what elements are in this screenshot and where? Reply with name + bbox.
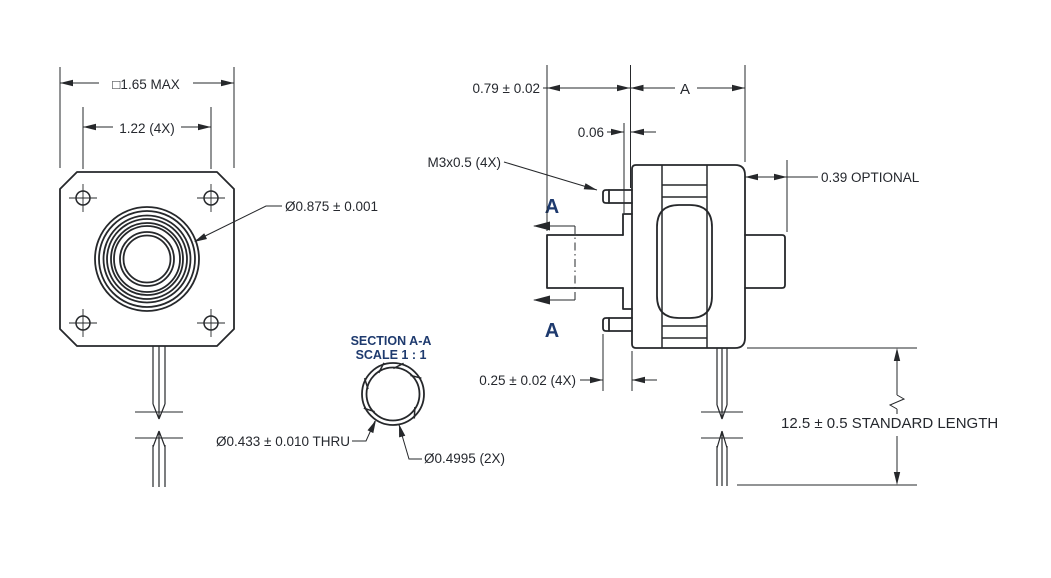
- section-arrow-bottom-label: A: [545, 320, 559, 342]
- mounting-hole-bottom-left: [69, 309, 97, 337]
- extension-lines: [547, 65, 787, 391]
- dim-pilot-depth-label: 0.06: [578, 125, 604, 140]
- dim-flange-depth-label: 0.25 ± 0.02 (4X): [479, 373, 576, 388]
- section-view: SECTION A-A SCALE 1 : 1 Ø0.433 ± 0.010 T…: [216, 334, 505, 466]
- endbell-joints: [662, 165, 707, 348]
- dim-hole-spacing-label: 1.22 (4X): [119, 121, 175, 136]
- section-title: SECTION A-A: [351, 334, 432, 348]
- dim-body-length-label: A: [680, 81, 690, 98]
- mounting-hole-bottom-right: [197, 309, 225, 337]
- mounting-hole-top-right: [197, 184, 225, 212]
- shaft: [547, 235, 623, 288]
- leader-shaft-diameter: Ø0.4995 (2X): [399, 424, 505, 466]
- lamination-stack: [657, 205, 712, 318]
- dim-shaft-length-label: 0.79 ± 0.02: [473, 81, 540, 96]
- lead-wires-front: [135, 346, 183, 487]
- dim-overall-width: □1.65 MAX: [60, 67, 234, 168]
- dim-bore-label: Ø0.433 ± 0.010 THRU: [216, 434, 350, 449]
- leader-pilot-diameter: Ø0.875 ± 0.001: [194, 199, 378, 242]
- dim-lead-length-label: 12.5 ± 0.5 STANDARD LENGTH: [781, 415, 998, 432]
- section-scale: SCALE 1 : 1: [356, 348, 427, 362]
- pilot-boss-side: [623, 214, 632, 309]
- leader-bore-diameter: Ø0.433 ± 0.010 THRU: [216, 420, 376, 449]
- dim-pilot-depth: 0.06: [578, 125, 656, 140]
- section-cut-line: A A: [533, 196, 575, 342]
- stack-edge-lines: [662, 185, 707, 338]
- mounting-tab-bottom: [603, 318, 632, 331]
- dim-hole-spacing: 1.22 (4X): [83, 107, 211, 169]
- dim-lead-length: 12.5 ± 0.5 STANDARD LENGTH: [737, 348, 998, 485]
- mounting-tab-top: [603, 190, 632, 203]
- dim-rear-boss-label: 0.39 OPTIONAL: [821, 170, 920, 185]
- motor-body-outline: [632, 165, 745, 348]
- dim-mounting-thread-label: M3x0.5 (4X): [427, 155, 501, 170]
- pilot-boss-circles: [95, 207, 199, 311]
- shaft-section-circles: [362, 363, 424, 425]
- dim-overall-width-label: □1.65 MAX: [112, 77, 179, 92]
- dim-shaft-length: 0.79 ± 0.02: [473, 81, 630, 96]
- dim-pilot-diameter-label: Ø0.875 ± 0.001: [285, 199, 378, 214]
- dim-body-length: A: [631, 81, 746, 98]
- dim-rear-boss: 0.39 OPTIONAL: [745, 170, 920, 185]
- leader-mounting-thread: M3x0.5 (4X): [427, 155, 597, 190]
- rear-boss: [745, 235, 785, 288]
- mounting-hole-top-left: [69, 184, 97, 212]
- front-view: □1.65 MAX 1.22 (4X) Ø0.875 ± 0.001: [60, 67, 378, 487]
- dim-flange-depth: 0.25 ± 0.02 (4X): [479, 373, 657, 388]
- lead-wires-side: [701, 348, 743, 486]
- motor-engineering-drawing: □1.65 MAX 1.22 (4X) Ø0.875 ± 0.001 SECTI…: [0, 0, 1051, 578]
- side-view: A A 0.79 ± 0.02 A 0.06: [427, 65, 998, 486]
- drawing-canvas: □1.65 MAX 1.22 (4X) Ø0.875 ± 0.001 SECTI…: [0, 0, 1051, 578]
- dim-shaft-diameter-label: Ø0.4995 (2X): [424, 451, 505, 466]
